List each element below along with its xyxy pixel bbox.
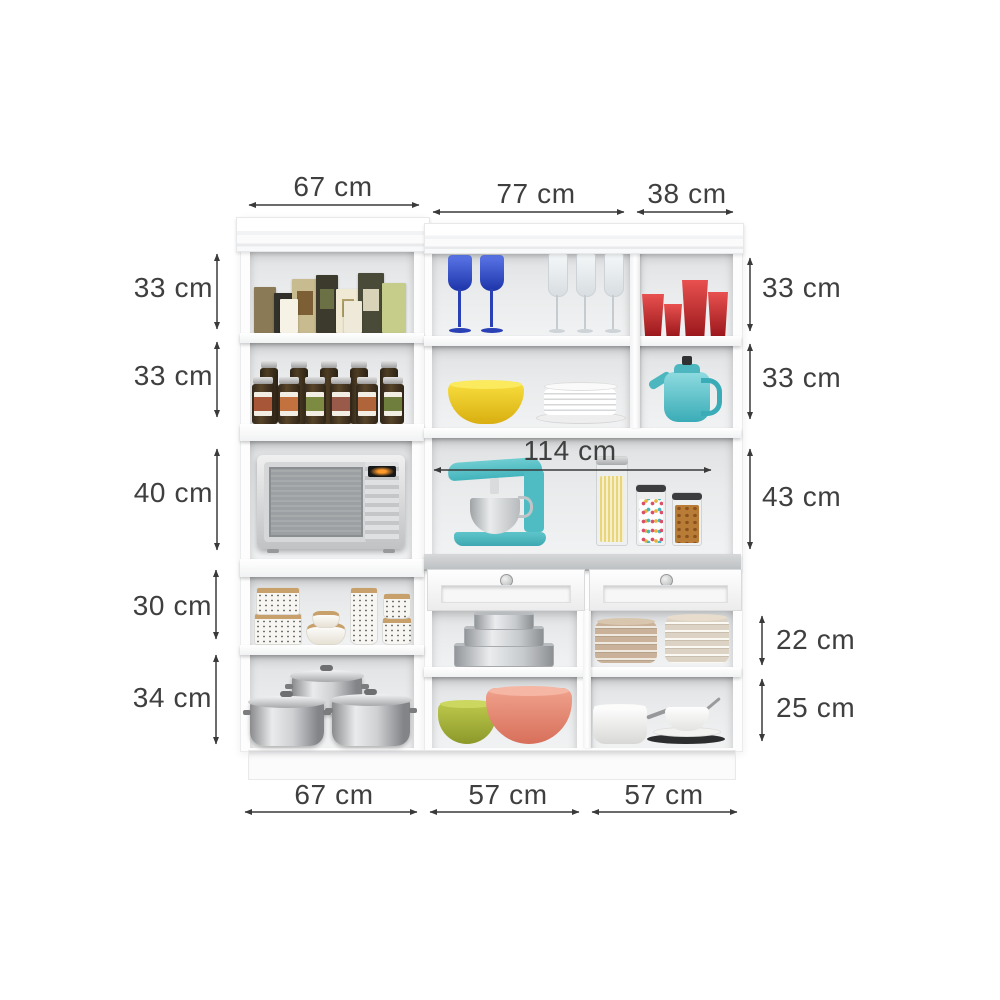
dim-label-top-width-left: 67 cm [293, 173, 372, 201]
dim-label-bottom-width-mid: 57 cm [468, 781, 547, 809]
dim-label-top-width-mid: 77 cm [496, 180, 575, 208]
dim-label-left-shelf1: 33 cm [134, 274, 213, 302]
dim-label-counter-width: 114 cm [523, 437, 616, 465]
furniture-dimension-diagram: 67 cm 77 cm 38 cm 33 cm 33 cm 40 cm 30 c… [0, 0, 1000, 1000]
dim-label-right-shelf1: 33 cm [762, 274, 841, 302]
dim-label-left-shelf4: 34 cm [133, 684, 212, 712]
dim-label-left-shelf2: 33 cm [134, 362, 213, 390]
dim-label-right-counter: 43 cm [762, 483, 841, 511]
dim-label-right-shelf3: 22 cm [776, 626, 855, 654]
dim-label-left-shelf3: 30 cm [133, 592, 212, 620]
dim-label-bottom-width-right: 57 cm [624, 781, 703, 809]
dim-label-bottom-width-left: 67 cm [294, 781, 373, 809]
dim-label-right-shelf2: 33 cm [762, 364, 841, 392]
dim-label-right-shelf4: 25 cm [776, 694, 855, 722]
dim-label-top-width-right: 38 cm [647, 180, 726, 208]
dim-label-left-microwave: 40 cm [134, 479, 213, 507]
